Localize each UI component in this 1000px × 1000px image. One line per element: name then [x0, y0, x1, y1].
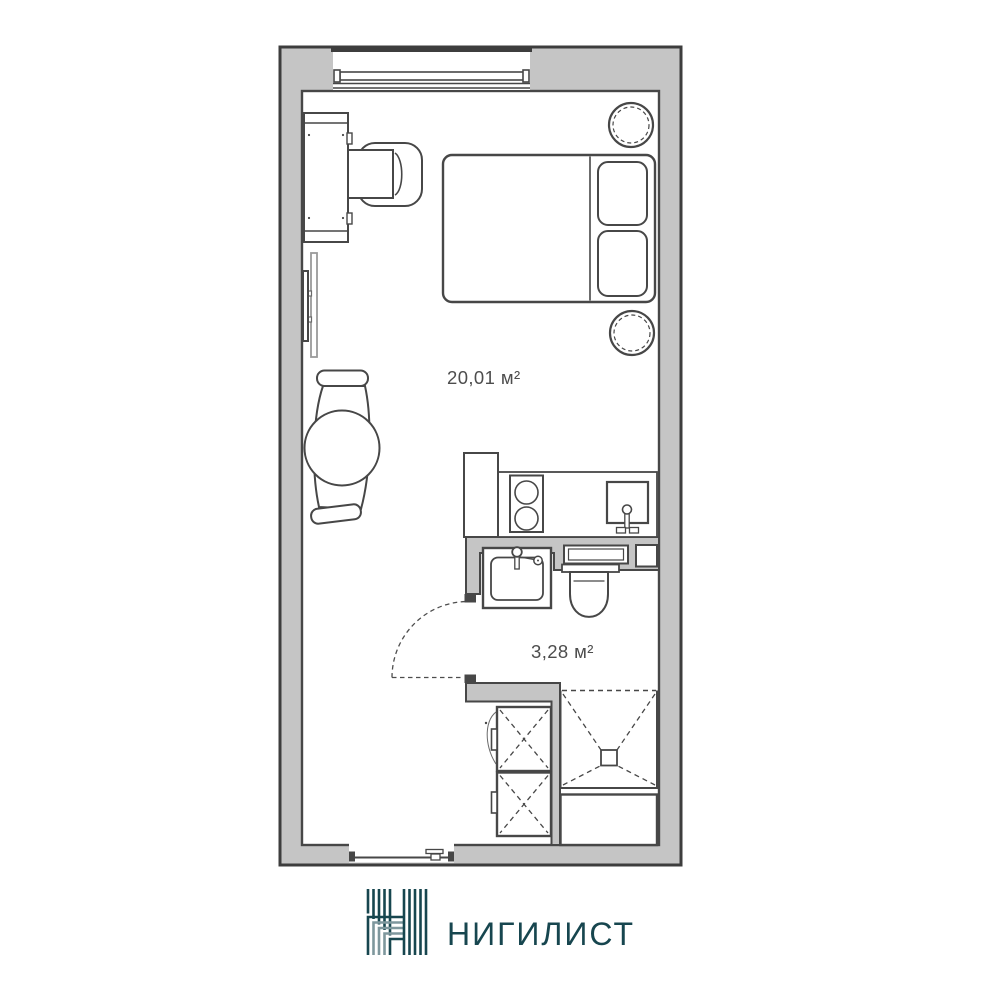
window	[331, 49, 532, 90]
entrance-door	[349, 843, 454, 863]
bedside-table-bottom	[610, 311, 654, 355]
ventilation-shaft	[636, 545, 657, 567]
floorplan-page: 20,01 м² 3,28 м² НИГИЛИСТ	[0, 0, 1000, 1000]
brand-logo: НИГИЛИСТ	[0, 888, 1000, 956]
bedside-table-top	[609, 103, 653, 147]
desk-chair	[348, 143, 422, 206]
cistern	[564, 546, 628, 564]
bathroom-sink	[483, 547, 551, 608]
floor-plan: 20,01 м² 3,28 м²	[0, 0, 1000, 1000]
desk	[304, 113, 352, 242]
bed	[443, 155, 655, 302]
shower	[561, 691, 658, 789]
nihilist-logo-icon	[365, 888, 429, 956]
brand-wordmark: НИГИЛИСТ	[447, 918, 635, 956]
stove	[510, 476, 543, 533]
tall-cabinet	[464, 453, 498, 537]
pillow	[598, 162, 647, 225]
pillow	[598, 231, 647, 296]
bathroom-area-label: 3,28 м²	[531, 641, 594, 662]
shower-drain	[601, 750, 617, 766]
main-room-area-label: 20,01 м²	[447, 367, 521, 388]
storage-cabinet	[561, 795, 658, 846]
